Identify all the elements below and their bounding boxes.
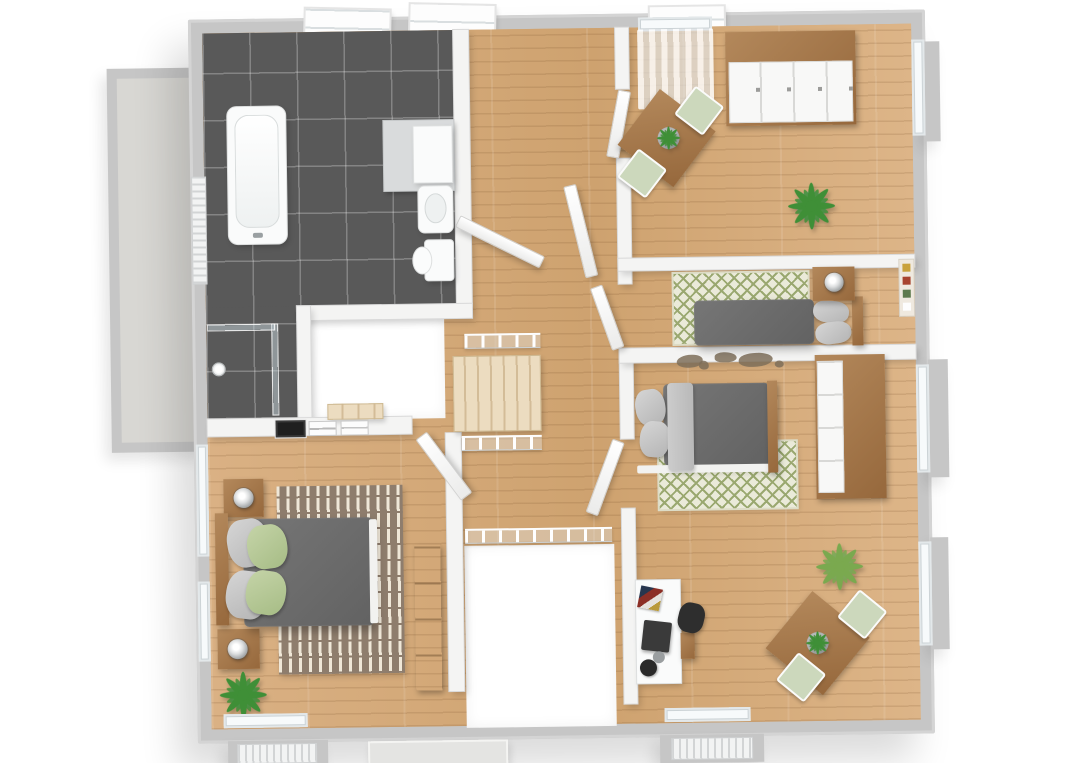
wall-picture-dark xyxy=(278,422,304,435)
basin-bowl xyxy=(424,193,446,223)
wall-picture-white-1 xyxy=(310,422,336,435)
office-table-plant xyxy=(803,629,831,657)
shower-head xyxy=(213,363,225,375)
stair-railing-south xyxy=(462,435,542,451)
office-drawer-unit xyxy=(681,633,695,659)
second-void-opening xyxy=(464,544,617,728)
shelf-picture-4 xyxy=(903,303,911,311)
master-lamp-top xyxy=(233,488,253,508)
office-books xyxy=(637,585,663,611)
shelf-picture-1 xyxy=(902,264,910,272)
bedroom-office-wardrobe-doors xyxy=(817,361,845,493)
wall-rooms-left-a xyxy=(615,28,629,89)
toilet-bowl xyxy=(413,247,431,273)
wall-picture-shelf xyxy=(899,260,914,316)
staircase-main-flight xyxy=(453,355,542,432)
floor-plan-render xyxy=(0,0,1080,763)
wall-shower-void xyxy=(297,306,312,420)
master-wall-pictures xyxy=(276,420,372,436)
staircase-lower-flight xyxy=(327,403,383,420)
study-table-plant xyxy=(654,124,682,152)
window-bay-right-top xyxy=(923,41,940,141)
bedroom-office-footboard xyxy=(767,381,778,473)
building-plan xyxy=(110,9,950,757)
radiator-bottom-right xyxy=(672,738,752,759)
vanity-cabinet xyxy=(413,126,452,183)
master-mattress-edge xyxy=(369,519,378,623)
bedroom-small-duvet xyxy=(694,299,815,346)
void-railing xyxy=(465,527,612,544)
stair-railing-north xyxy=(464,333,540,349)
bedroom-small-right-window xyxy=(916,364,931,472)
towel-radiator xyxy=(192,178,206,284)
bedroom-small-headboard xyxy=(852,296,864,345)
study-floor-plant xyxy=(783,178,840,235)
office-floor-plant xyxy=(811,538,868,595)
toilet xyxy=(425,240,454,280)
wall-rooms-left-d xyxy=(622,509,638,704)
shower-glass-panel-2 xyxy=(208,325,274,331)
washbasin xyxy=(418,186,453,232)
study-wardrobe xyxy=(725,30,856,126)
bathtub-faucet xyxy=(253,233,263,238)
wall-bathroom-bottom xyxy=(297,304,472,320)
window-bay-right-middle xyxy=(928,359,950,477)
radiator-bottom-left xyxy=(238,744,316,763)
window-bay-right-bottom xyxy=(930,537,950,649)
bedroom-office-throw xyxy=(667,383,694,471)
office-monitor xyxy=(641,620,672,653)
entrance-canopy xyxy=(368,739,508,763)
bathtub xyxy=(227,106,287,244)
shelf-picture-3 xyxy=(903,290,911,298)
world-map-decal xyxy=(675,347,800,373)
master-left-window-1 xyxy=(196,445,210,557)
study-right-window xyxy=(911,39,925,135)
wall-picture-white-2 xyxy=(342,421,368,434)
bedroom-office-bottom-window xyxy=(665,707,751,722)
bedroom-office-right-window xyxy=(918,541,932,645)
bedroom-office-wardrobe xyxy=(815,354,887,499)
bathtub-basin xyxy=(234,114,280,228)
master-left-window-2 xyxy=(198,581,211,661)
shelf-picture-2 xyxy=(903,277,911,285)
master-bottom-window xyxy=(224,713,308,728)
master-wardrobe xyxy=(414,544,442,690)
